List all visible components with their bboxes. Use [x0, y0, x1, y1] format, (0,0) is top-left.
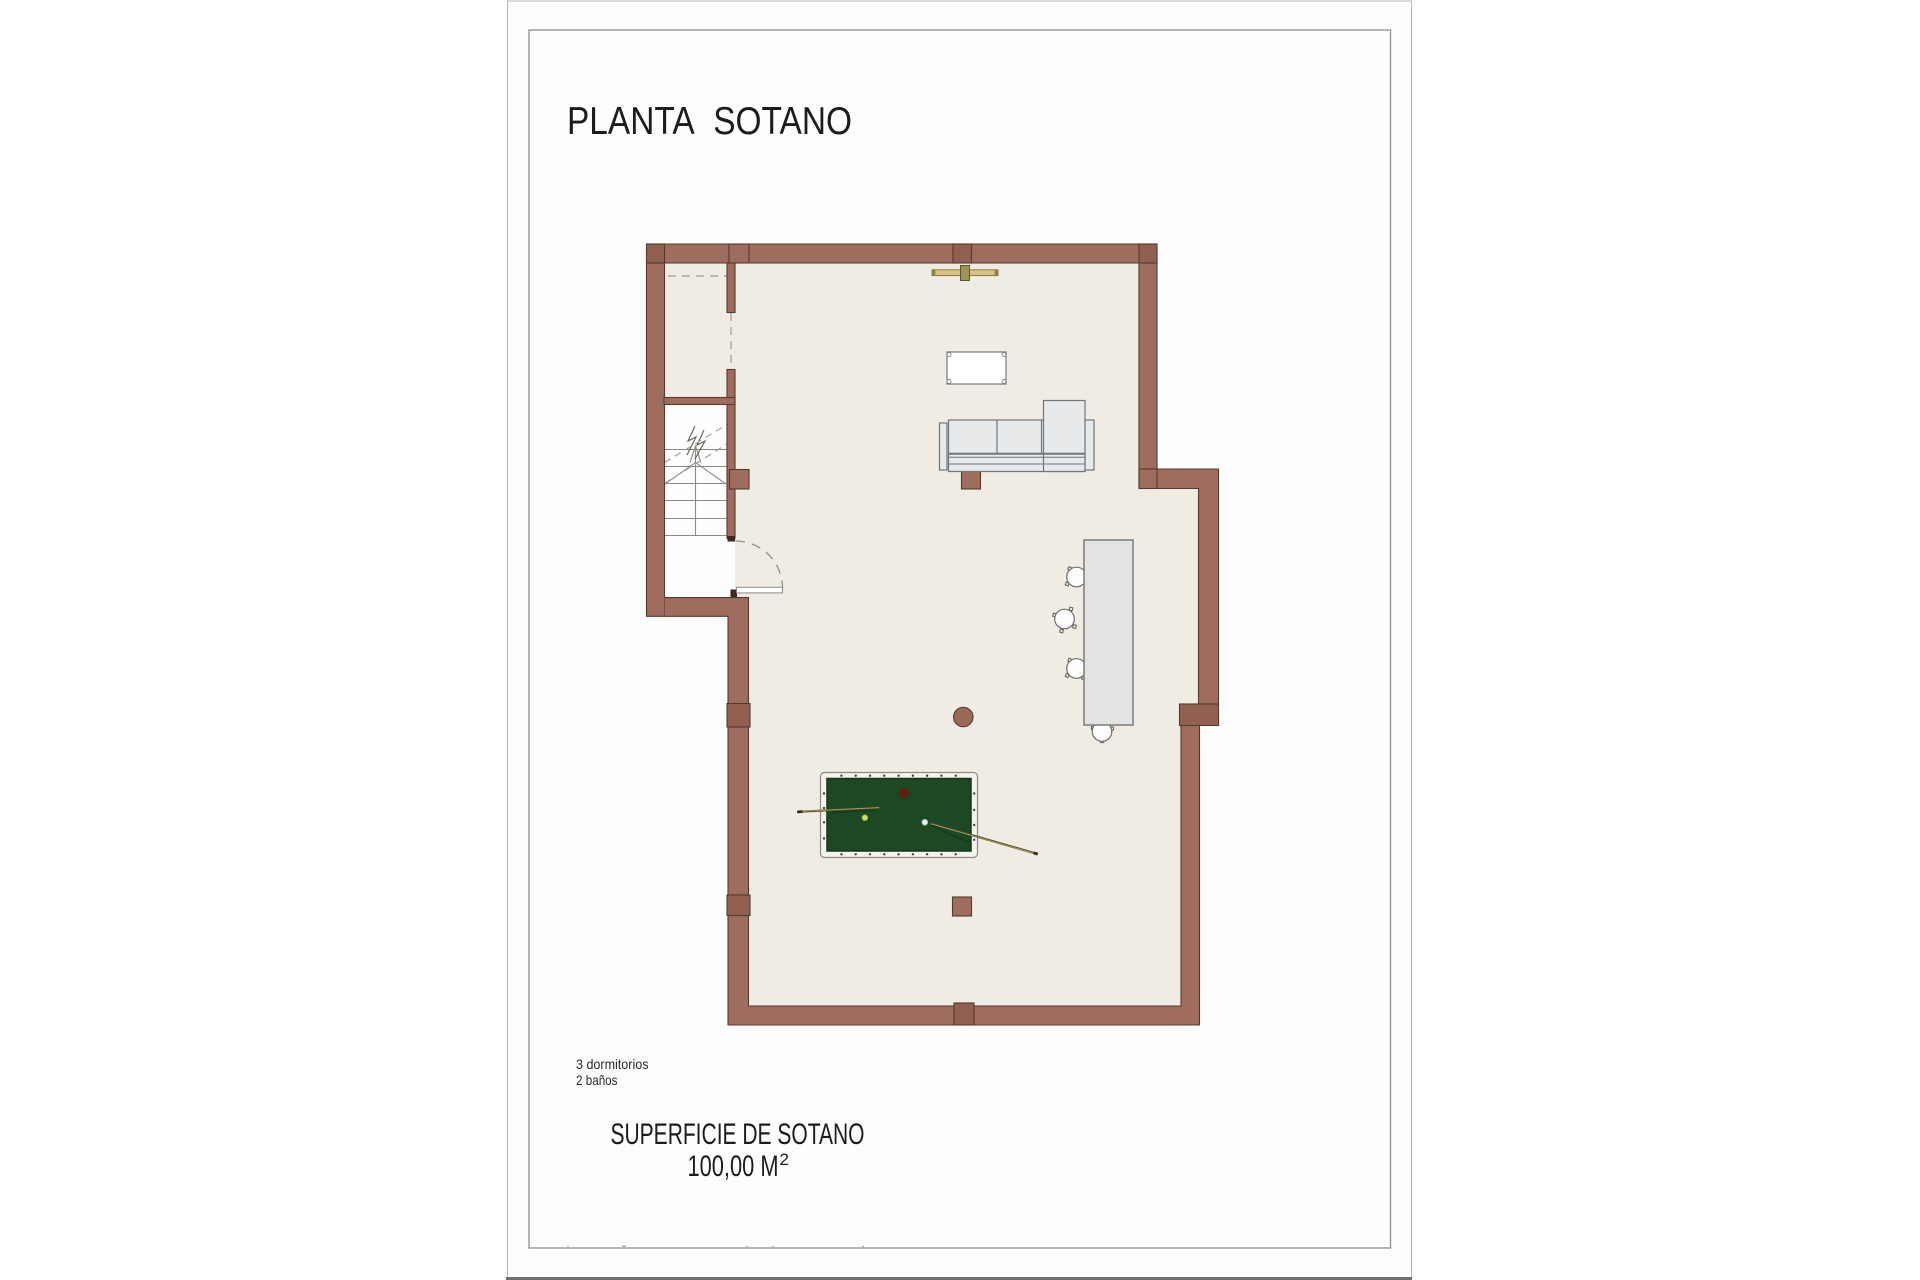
svg-text:2: 2: [780, 1150, 789, 1169]
svg-text:SUPERFICIE DE SOTANO: SUPERFICIE DE SOTANO: [611, 1118, 865, 1151]
svg-text:3 dormitorios: 3 dormitorios: [576, 1056, 649, 1072]
svg-text:PLANTA SOTANO: PLANTA SOTANO: [567, 100, 852, 143]
svg-text:100,00 M: 100,00 M: [688, 1150, 779, 1183]
svg-text:2 baños: 2 baños: [576, 1072, 618, 1088]
